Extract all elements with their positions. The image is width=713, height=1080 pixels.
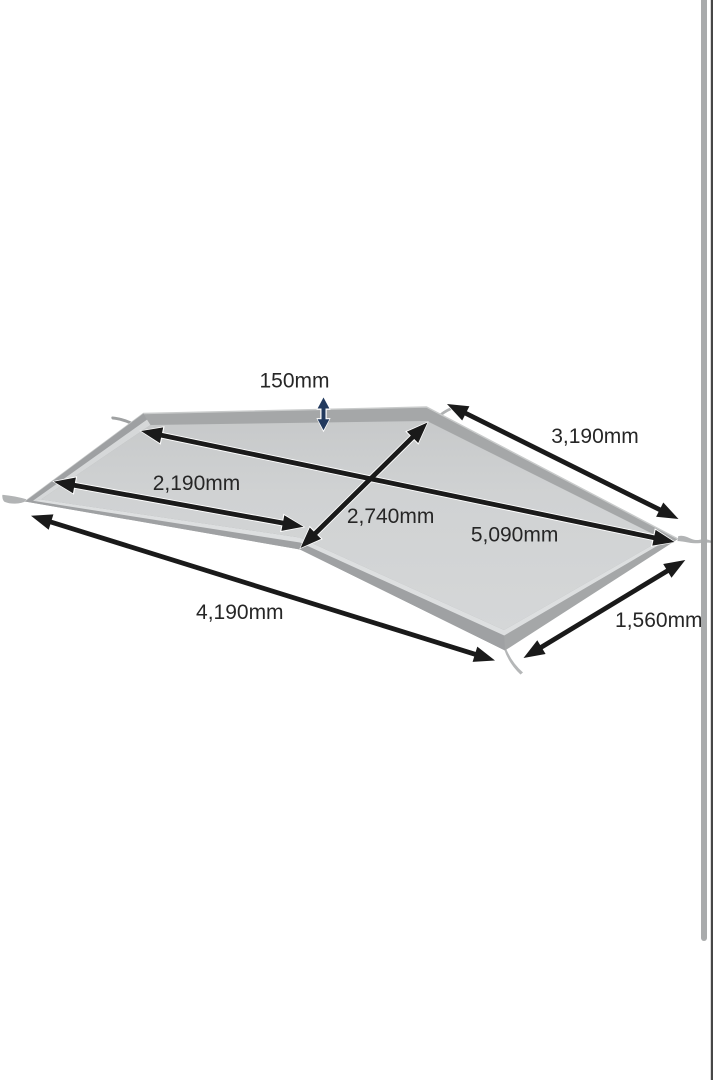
- svg-text:2,190mm: 2,190mm: [153, 472, 241, 495]
- svg-text:150mm: 150mm: [259, 369, 329, 392]
- svg-text:3,190mm: 3,190mm: [551, 425, 639, 448]
- svg-text:4,190mm: 4,190mm: [196, 601, 284, 624]
- svg-text:5,090mm: 5,090mm: [471, 524, 559, 547]
- svg-text:2,740mm: 2,740mm: [347, 505, 435, 528]
- svg-text:1,560mm: 1,560mm: [615, 609, 703, 632]
